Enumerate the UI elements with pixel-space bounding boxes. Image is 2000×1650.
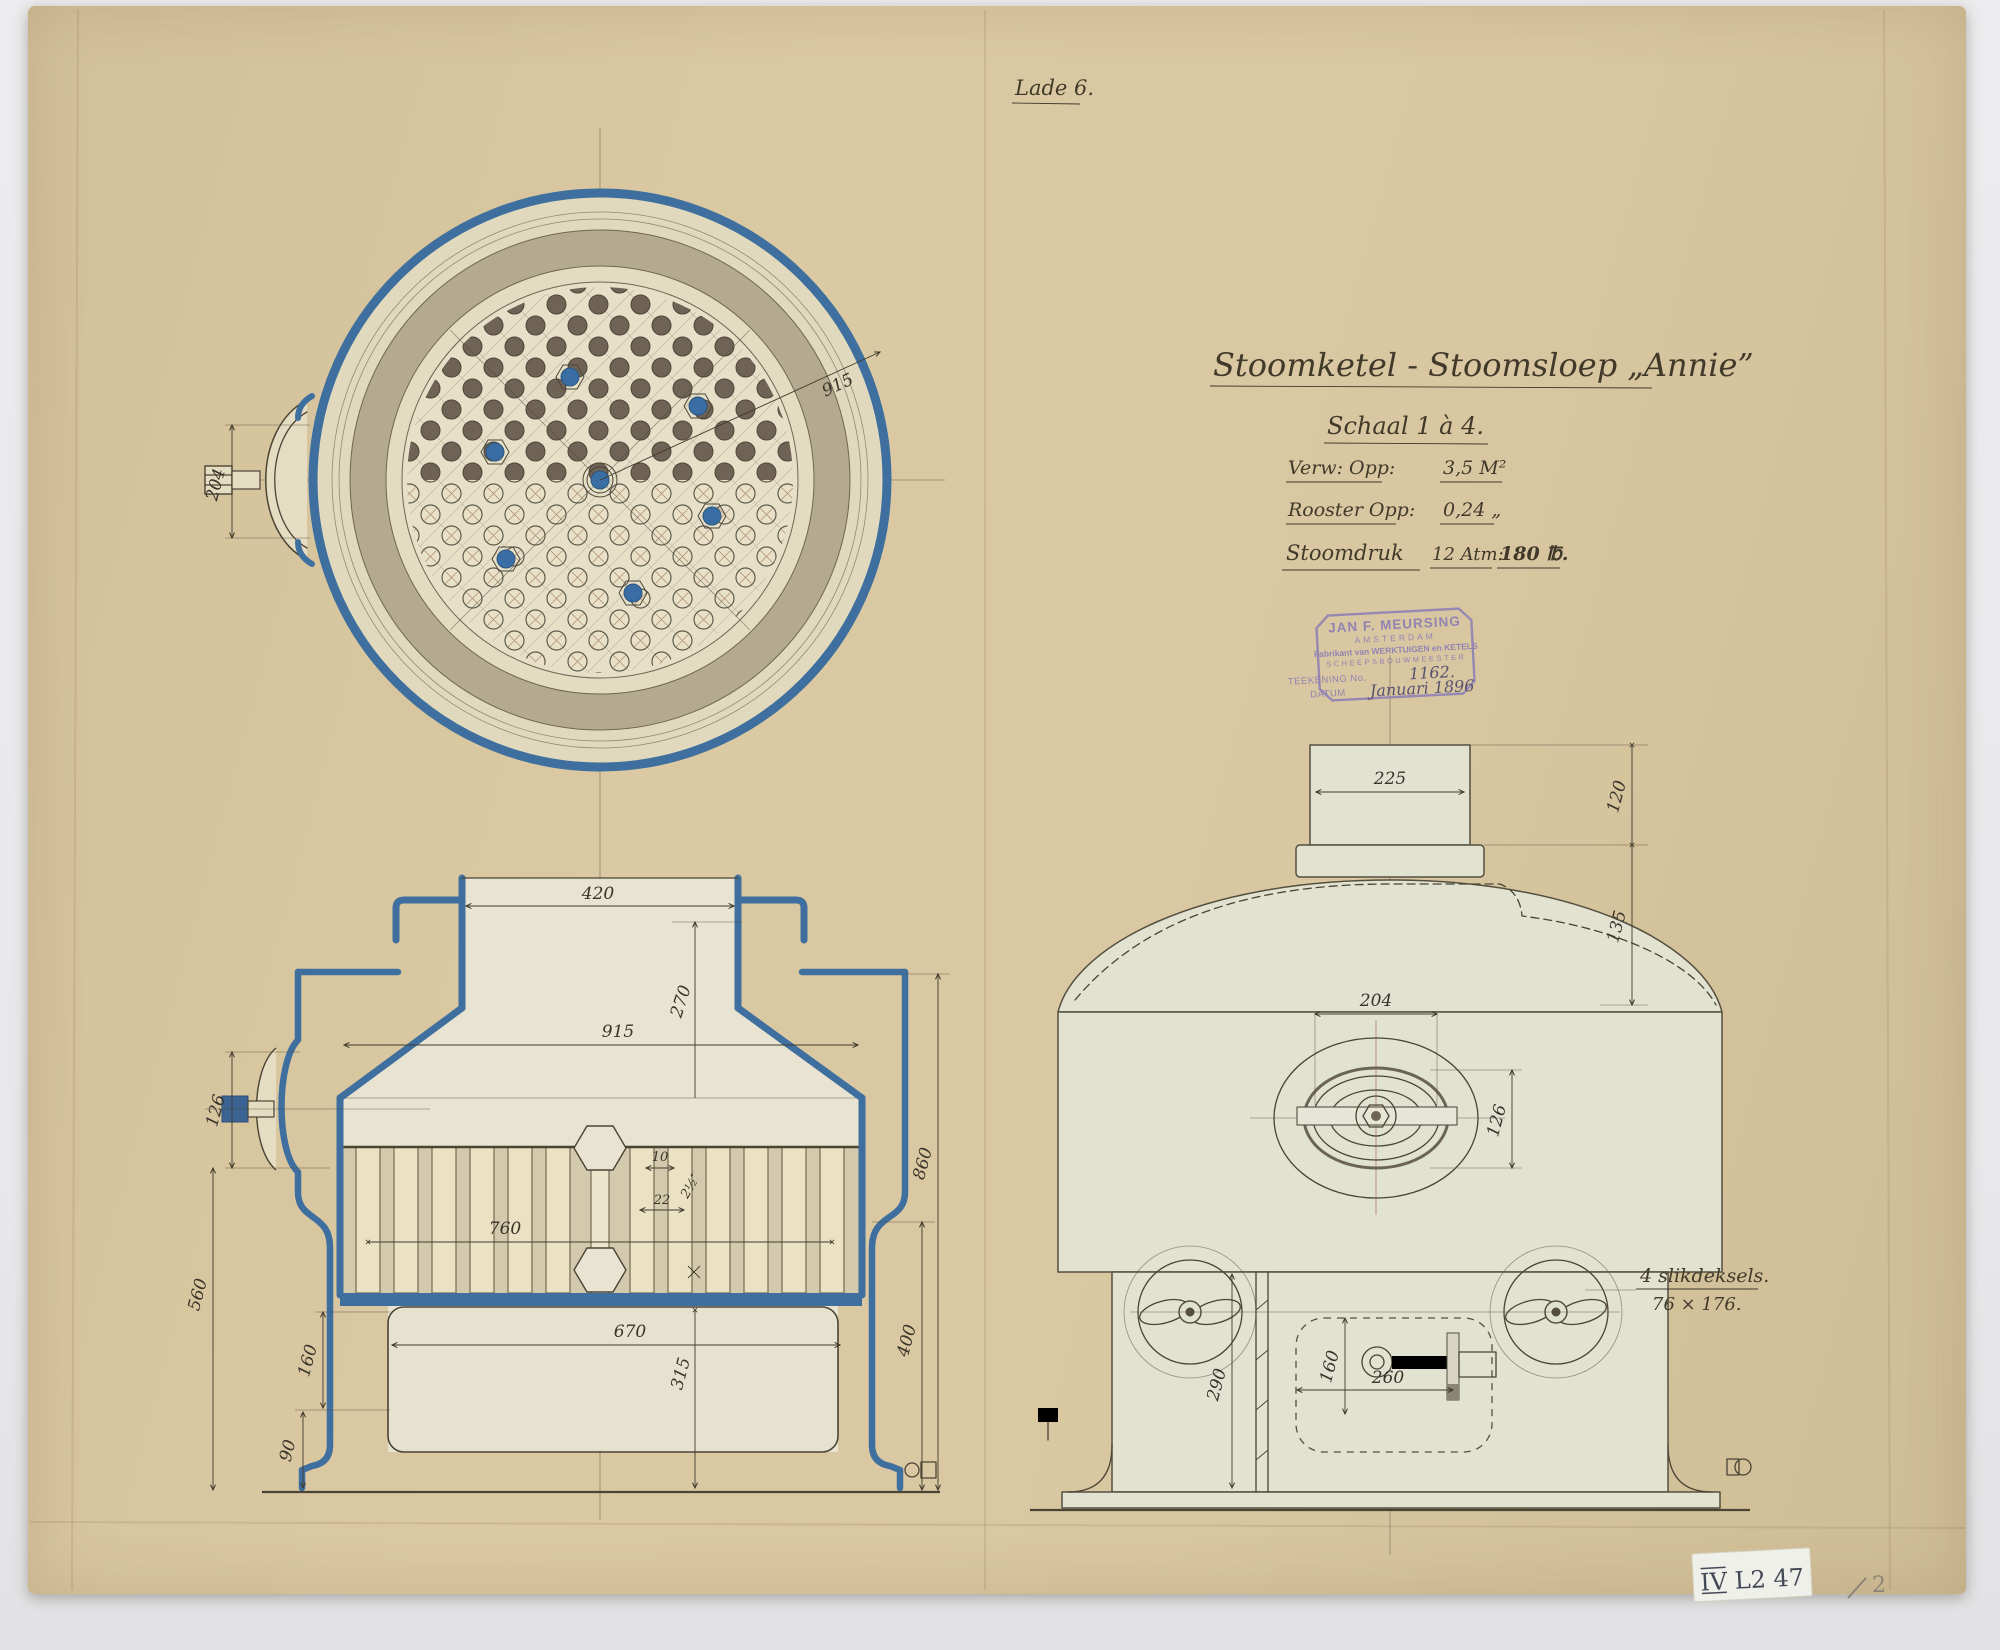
- tube: [546, 1147, 570, 1293]
- manhole-nut-center: [1371, 1111, 1381, 1121]
- tube: [782, 1147, 806, 1293]
- cover-rim-right: [738, 900, 804, 940]
- dim-260-label: 260: [1371, 1368, 1405, 1388]
- title-block: Stoomketel - Stoomsloep „Annie” Schaal 1…: [1210, 346, 1754, 570]
- spec3-value2: 180 ℔.: [1500, 543, 1568, 565]
- dim-225-label: 225: [1373, 769, 1406, 789]
- stay-dot: [561, 368, 579, 386]
- dim-204-label: 204: [1359, 991, 1392, 1011]
- note-line2: 76 × 176.: [1652, 1294, 1742, 1315]
- front-sectional-elevation: 420 270 915 126 560 160 90 760: [184, 878, 950, 1492]
- dim-126-label: 126: [202, 1092, 230, 1129]
- right-bolt: [1735, 1459, 1751, 1475]
- scale-underline: [1324, 443, 1488, 444]
- tube: [630, 1147, 654, 1293]
- scanned-drawing: 204 915: [0, 0, 2000, 1650]
- base-plate: [1062, 1492, 1720, 1508]
- dim-90-label: 90: [276, 1437, 301, 1463]
- stamp-no-label: TEEKENING No.: [1288, 673, 1367, 688]
- dim-760-label: 760: [489, 1219, 522, 1239]
- drawing-canvas: 204 915: [0, 0, 2000, 1650]
- archive-sticker: IV L2 47: [1692, 1548, 1812, 1602]
- side-elevation: 204 126: [1030, 655, 1769, 1555]
- spec3-label: Stoomdruk: [1286, 541, 1404, 565]
- foot-bolt-plate: [921, 1462, 936, 1478]
- dim-670-label: 670: [614, 1322, 647, 1342]
- spec1-value: 3,5 M²: [1443, 457, 1506, 479]
- manhole-bolt-stem: [232, 471, 260, 489]
- drawing-title: Stoomketel - Stoomsloep „Annie”: [1213, 346, 1754, 384]
- dim-400-label: 400: [893, 1322, 921, 1360]
- pencil-number: 2: [1872, 1573, 1886, 1598]
- boiler-body: [1058, 1012, 1722, 1272]
- handle-plate-foot: [1447, 1384, 1459, 1400]
- chimney-flange: [1296, 845, 1484, 877]
- top-view-manhole: 204: [202, 396, 312, 564]
- dim-160-label: 160: [294, 1342, 322, 1379]
- foot-bolt: [905, 1463, 919, 1477]
- spec2-label: Rooster Opp:: [1287, 499, 1415, 521]
- scale-label: Schaal 1 à 4.: [1327, 412, 1484, 440]
- title-underline: [1210, 386, 1652, 388]
- dim-420-label: 420: [581, 884, 615, 904]
- foot-curve-left: [1068, 1445, 1112, 1492]
- left-bolt-fitting: [1038, 1408, 1058, 1422]
- dim-860-label: 860: [909, 1145, 937, 1182]
- manhole-bracket: [266, 400, 307, 560]
- bottom-crease: [30, 1522, 1965, 1528]
- maker-stamp: JAN F. MEURSING AMSTERDAM Fabrikant van …: [1285, 608, 1481, 705]
- dim-560-label: 560: [184, 1276, 212, 1313]
- lower-tube-plate-blue: [340, 1293, 862, 1306]
- folder-label: Lade 6.: [1014, 76, 1094, 100]
- folder-label-underline: [1012, 103, 1080, 104]
- tube: [394, 1147, 418, 1293]
- dim-10-label: 10: [652, 1150, 669, 1165]
- stay-dot: [497, 550, 515, 568]
- stay-dot: [486, 443, 504, 461]
- stamp-date-label: DATUM: [1310, 688, 1346, 701]
- stay-dot: [703, 507, 721, 525]
- jacket-left: [282, 972, 331, 1488]
- tube: [668, 1147, 692, 1293]
- pencil-stroke: [1848, 1578, 1866, 1598]
- dim-22-label: 22: [653, 1193, 671, 1208]
- chimney: [1310, 745, 1470, 845]
- dim-915-label: 915: [602, 1022, 634, 1042]
- tube: [706, 1147, 730, 1293]
- tube: [744, 1147, 768, 1293]
- jacket-right: [872, 972, 905, 1488]
- foot-curve-right: [1668, 1445, 1712, 1492]
- right-crease: [1884, 10, 1890, 1590]
- stay-dot: [689, 397, 707, 415]
- note-line1: 4 slikdeksels.: [1639, 1265, 1769, 1287]
- spec3-value1: 12 Atm:: [1432, 544, 1504, 565]
- stay-dot: [624, 584, 642, 602]
- dim-120-label: 120: [1603, 778, 1631, 815]
- tube: [356, 1147, 380, 1293]
- tube: [432, 1147, 456, 1293]
- tube: [820, 1147, 844, 1293]
- stamp-date-value: Januari 1896: [1366, 676, 1475, 701]
- spec1-label: Verw: Opp:: [1288, 457, 1395, 479]
- spec2-value: 0,24 „: [1443, 499, 1501, 521]
- left-crease: [72, 10, 78, 1590]
- cover-rim-left: [396, 900, 462, 940]
